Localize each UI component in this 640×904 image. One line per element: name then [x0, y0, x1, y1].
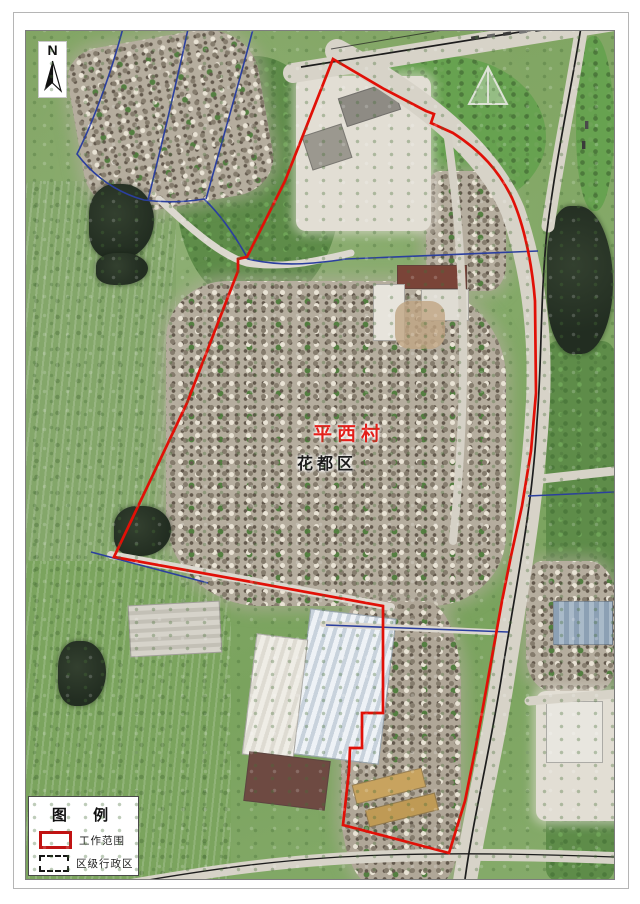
trees-top-right-edge [576, 36, 614, 211]
legend-title: 图 例 [33, 804, 138, 825]
satellite-map-canvas: 平西村 花都区 N 图 例 工作范围 区级行政区 [25, 30, 615, 880]
village-name-label: 平西村 [313, 419, 385, 446]
red-roof-factory [397, 265, 467, 289]
legend-item-work-scope: 工作范围 [39, 831, 138, 849]
district-name-label: 花都区 [297, 450, 357, 474]
legend-item-admin-district: 区级行政区 [39, 854, 138, 872]
warehouse-striped-blue [292, 608, 396, 765]
admin-district-swatch [39, 855, 69, 872]
maroon-roof-building [243, 751, 330, 811]
work-scope-swatch [39, 831, 72, 849]
legend-box: 图 例 工作范围 区级行政区 [28, 796, 139, 876]
legend-item-label: 区级行政区 [76, 856, 134, 871]
lumber-yard [395, 301, 445, 349]
pond-east [547, 206, 613, 354]
north-arrow-icon [39, 59, 66, 95]
north-arrow-label: N [39, 42, 66, 59]
map-page: 平西村 花都区 N 图 例 工作范围 区级行政区 [0, 0, 640, 904]
legend-item-label: 工作范围 [79, 833, 125, 848]
blue-gray-building [553, 601, 613, 645]
gray-sheds [128, 601, 223, 658]
north-arrow: N [38, 41, 67, 98]
white-building [546, 701, 603, 763]
